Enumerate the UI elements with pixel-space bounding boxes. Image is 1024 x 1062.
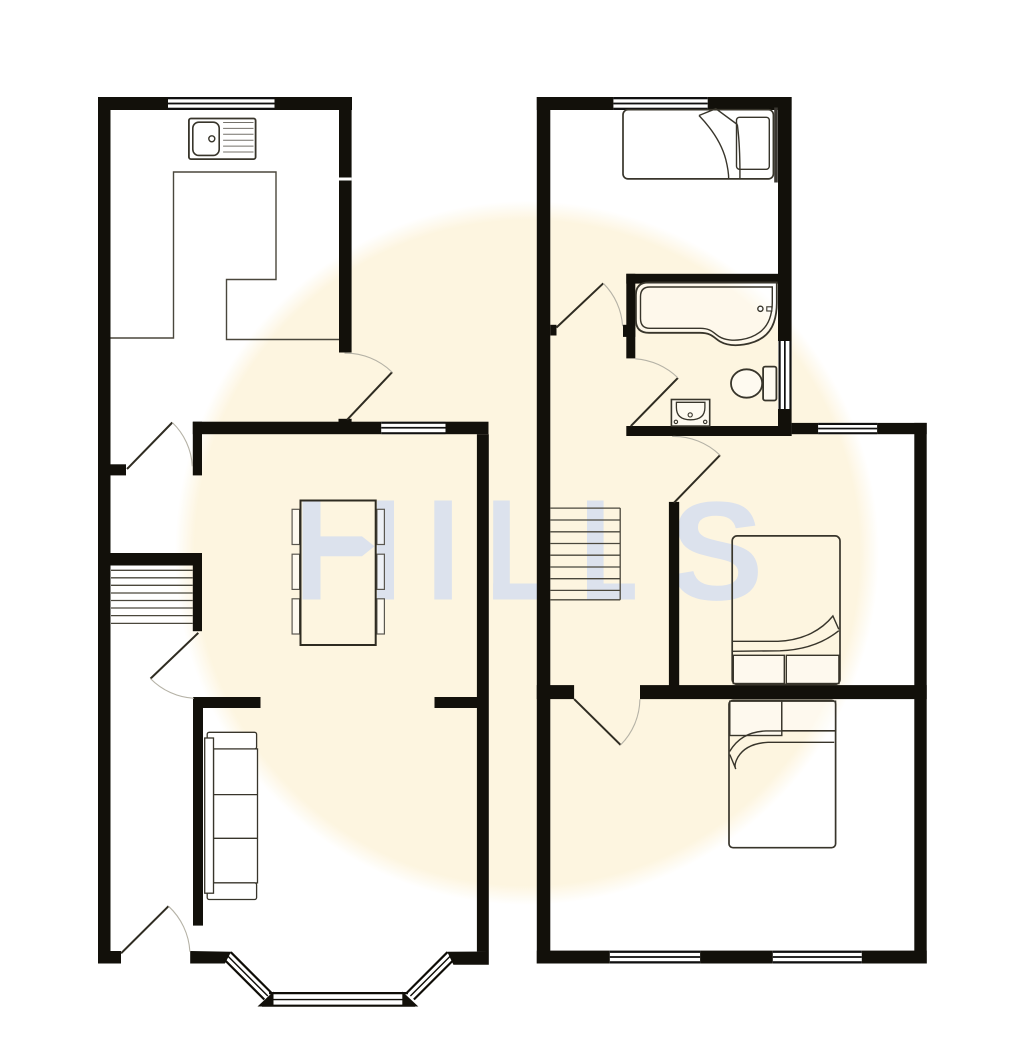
svg-text:S: S [670, 473, 764, 630]
